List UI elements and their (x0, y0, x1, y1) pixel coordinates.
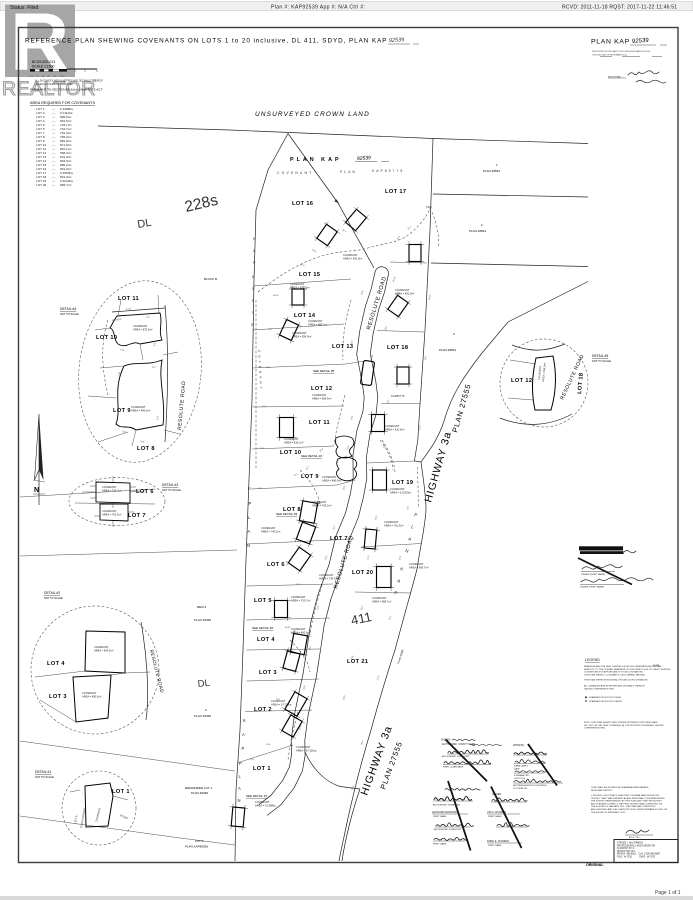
svg-text:KAP85775: KAP85775 (391, 394, 405, 398)
svg-text:COVENANT: COVENANT (372, 596, 387, 600)
svg-text:COVENANT: COVENANT (312, 393, 327, 397)
svg-text:PLAN: PLAN (340, 170, 357, 174)
svg-text:AREA = 761.3m²: AREA = 761.3m² (102, 512, 122, 516)
svg-text:AREA = 886.2m²: AREA = 886.2m² (308, 322, 328, 326)
svg-text:COVENANT: COVENANT (255, 800, 270, 804)
svg-text:STANDARD IRON POST FOUND: STANDARD IRON POST FOUND (589, 696, 622, 699)
svg-text:K: K (243, 718, 246, 723)
svg-text:92539: 92539 (357, 155, 371, 162)
svg-text:DETAIL #3: DETAIL #3 (162, 483, 178, 487)
svg-text:COVENANT: COVENANT (343, 253, 358, 257)
svg-text:THIS PLAN SHEWS HORIZONTAL GRO: THIS PLAN SHEWS HORIZONTAL GROUND LEVEL … (584, 679, 648, 682)
svg-text:COVENANT: COVENANT (322, 475, 337, 479)
svg-text:NOT SET ON THE TRUE CORNER(S).: NOT SET ON THE TRUE CORNER(S). AT THE PR… (584, 724, 664, 727)
svg-text:AREA = 895.7m²: AREA = 895.7m² (372, 599, 392, 603)
svg-text:FRED E. RUNZER: FRED E. RUNZER (487, 839, 509, 843)
svg-text:LOT 19: LOT 19 (392, 480, 413, 486)
svg-text:I, STEVEN J. McCORMICK, A BRIT: I, STEVEN J. McCORMICK, A BRITISH COLUMB… (591, 794, 660, 797)
svg-text:BCGS 82E.013: BCGS 82E.013 (32, 60, 55, 64)
svg-text:COVENANT: COVENANT (82, 691, 97, 695)
svg-text:PLAN 28834: PLAN 28834 (483, 169, 500, 173)
svg-text:PRINT NAME: PRINT NAME (488, 815, 502, 818)
svg-text:PENTICTON, B.C.: PENTICTON, B.C. (617, 851, 636, 853)
svg-text:THIS PLAN LIES WITHIN THE OKAN: THIS PLAN LIES WITHIN THE OKANAGAN SIMIL… (591, 786, 649, 789)
svg-text:NOTE: THIS PLAN SHEWS ONE OR M: NOTE: THIS PLAN SHEWS ONE OR MORE WITNES… (584, 721, 658, 724)
svg-text:AREA = 761.3m²: AREA = 761.3m² (384, 523, 404, 527)
svg-text:5: 5 (251, 323, 253, 327)
svg-text:LOT 4: LOT 4 (257, 637, 275, 643)
svg-text:NOT TO SCALE: NOT TO SCALE (592, 359, 611, 363)
svg-text:15 0 15 30 45: 15 0 15 30 45 60 75 m (29, 76, 65, 78)
svg-text:SEE DETAIL #2: SEE DETAIL #2 (252, 626, 274, 630)
svg-text:LOT 7: LOT 7 (330, 536, 348, 542)
svg-text:LOT 15: LOT 15 (299, 272, 320, 278)
svg-text:PLAN 28834: PLAN 28834 (469, 229, 486, 233)
svg-text:REMAINDER LOT 1: REMAINDER LOT 1 (185, 786, 212, 790)
svg-text:UNSURVEYED CROWN LAND: UNSURVEYED CROWN LAND (255, 111, 370, 118)
svg-text:LOT 1: LOT 1 (112, 789, 130, 795)
svg-text:LEONARD EDWARDS: LEONARD EDWARDS (432, 810, 459, 814)
svg-text:KAP85775: KAP85775 (372, 169, 404, 173)
svg-text:COVENANT: COVENANT (261, 526, 276, 530)
svg-text:AREA = 0.7111ha: AREA = 0.7111ha (271, 702, 292, 706)
svg-text:AREA = 842.6m²: AREA = 842.6m² (94, 648, 114, 652)
svg-text:REFERENCE PLAN SHEWING COVENAN: REFERENCE PLAN SHEWING COVENANTS ON LOTS… (25, 38, 387, 45)
svg-text:NOT TO SCALE: NOT TO SCALE (162, 488, 181, 492)
svg-text:P: P (242, 746, 245, 751)
svg-text:COVENANT: COVENANT (277, 171, 313, 175)
svg-text:LOT 5: LOT 5 (254, 598, 272, 604)
svg-text:LOT 6: LOT 6 (267, 562, 285, 568)
svg-text:LOT 20: LOT 20 (352, 570, 373, 576)
svg-text:DETAIL #1: DETAIL #1 (35, 770, 51, 774)
svg-text:AREA = 871.0m²: AREA = 871.0m² (133, 327, 153, 331)
svg-text:OCCUPATION: OCCUPATION (513, 787, 528, 790)
svg-text:Plan #: KAP92539 App #: N/A Ct: Plan #: KAP92539 App #: N/A Ctrl #: (271, 5, 365, 11)
svg-text:AND PLAN ARE CORRECT. THE FIEL: AND PLAN ARE CORRECT. THE FIELD SURVEY W… (591, 802, 663, 805)
svg-text:AND CHECKED, AND THE CHECKLIST: AND CHECKED, AND THE CHECKLIST FILED UND… (591, 808, 668, 811)
svg-text:LEGEND: LEGEND (585, 658, 600, 662)
svg-text:AREA = 568.3m²: AREA = 568.3m² (312, 396, 332, 400)
svg-text:SIGNED: SIGNED (492, 793, 501, 796)
svg-text:DETAIL #5: DETAIL #5 (592, 354, 608, 358)
svg-text:LOT 4: LOT 4 (47, 661, 65, 667)
svg-text:NOT TO SCALE: NOT TO SCALE (44, 596, 63, 600)
svg-text:THE 3rd DAY OF FEBRUARY, 2011.: THE 3rd DAY OF FEBRUARY, 2011. (591, 811, 626, 814)
svg-text:OTHERWISE NOTED.: OTHERWISE NOTED. (584, 728, 606, 730)
svg-text:AREA = 895.7m²: AREA = 895.7m² (409, 565, 429, 569)
svg-text:PLAN KAP: PLAN KAP (591, 39, 630, 46)
svg-text:THE SURVEY REPRESENTED BY THIS: THE SURVEY REPRESENTED BY THIS PLAN, AND… (591, 800, 663, 803)
svg-text:FILE: W-7235 DWG:: FILE: W-7235 DWG: W-7235 (617, 857, 656, 859)
svg-text:THIS PLAN SHEWS 1 COVENANT TO: THIS PLAN SHEWS 1 COVENANT TO ACCOMPANY … (584, 673, 646, 676)
svg-text:PRINT NAME: PRINT NAME (488, 844, 502, 847)
svg-text:KAP85775. TO THE OVERALL BEARI: KAP85775. TO THE OVERALL BEARINGS OF UTM… (584, 668, 671, 671)
svg-text:DEPOSITED IN THE LAND TITLE OF: DEPOSITED IN THE LAND TITLE OFFICE AT KA… (592, 50, 651, 53)
svg-text:FORWARD RD.: FORWARD RD. (514, 774, 530, 777)
svg-text:AREA = 890.5m²: AREA = 890.5m² (82, 694, 102, 698)
svg-text:AREA = 831.0m²: AREA = 831.0m² (290, 285, 310, 289)
svg-text:ALL DISTANCES ARE IN METRES AN: ALL DISTANCES ARE IN METRES AND DECIMALS… (584, 685, 646, 688)
svg-text:COVENANT: COVENANT (290, 282, 305, 286)
svg-text:NOT TO SCALE: NOT TO SCALE (35, 775, 54, 779)
svg-text:AREA = 840.0m²: AREA = 840.0m² (131, 408, 151, 412)
svg-text:AREA = 0.2232ha: AREA = 0.2232ha (390, 490, 411, 494)
svg-text:LOT 16: LOT 16 (292, 201, 313, 207)
svg-text:LOT 1: LOT 1 (253, 766, 271, 772)
svg-text:DL: DL (136, 217, 152, 231)
svg-text:AREA = 831.0m²: AREA = 831.0m² (395, 291, 415, 295)
svg-text:THIS 24th DAY OF NOVEMBER: THIS 24th DAY OF NOVEMBER 2011 (592, 54, 628, 57)
svg-text:SEE DETAIL #3: SEE DETAIL #3 (276, 512, 298, 516)
svg-text:AREA = 734.7m²: AREA = 734.7m² (319, 576, 339, 580)
svg-text:UNLESS OTHERWISE NOTED: UNLESS OTHERWISE NOTED (584, 688, 615, 690)
svg-text:BEARINGS ARE UTM GRID, DERIVED: BEARINGS ARE UTM GRID, DERIVED FROM GPS … (584, 665, 661, 668)
svg-text:COVENANT: COVENANT (133, 324, 148, 328)
svg-text:COVENANT: COVENANT (384, 520, 399, 524)
svg-text:COVENANT: COVENANT (409, 562, 424, 566)
svg-text:LOT 7: LOT 7 (128, 513, 146, 519)
svg-text:A: A (248, 529, 251, 534)
svg-text:DL: DL (197, 678, 210, 690)
svg-text:SEE DETAIL #1: SEE DETAIL #1 (246, 794, 268, 798)
svg-text:REGIONAL DISTRICT: REGIONAL DISTRICT (591, 789, 613, 792)
svg-text:COVENANT: COVENANT (131, 405, 146, 409)
svg-text:OWNER (PRINT NAME): OWNER (PRINT NAME) (580, 586, 604, 589)
svg-text:PLAN 36396: PLAN 36396 (194, 618, 211, 622)
svg-text:COVENANT: COVENANT (291, 627, 306, 631)
svg-text:7: 7 (252, 299, 254, 303)
svg-text:LOT 3: LOT 3 (49, 694, 67, 700)
svg-text:SARA CAREY: SARA CAREY (514, 764, 529, 767)
svg-text:COVENANT: COVENANT (312, 500, 327, 504)
svg-text:COVENANT: COVENANT (284, 437, 299, 441)
svg-text:R=15: R=15 (285, 627, 291, 629)
svg-text:REGISTRAR: REGISTRAR (608, 76, 621, 79)
svg-text:LOT 17: LOT 17 (385, 189, 406, 195)
svg-text:TIES: TIES (426, 205, 432, 209)
svg-text:OSOYOOS: OSOYOOS (514, 778, 526, 780)
svg-text:LOT A: LOT A (195, 839, 203, 843)
svg-text:34 FRONT ST. S.: 34 FRONT ST. S. (617, 848, 635, 850)
svg-text:LOT 9: LOT 9 (301, 474, 319, 480)
svg-text:PH/FAX: 492-8811 Cell: 1-25: PH/FAX: 492-8811 Cell: 1-250-490-5887 (617, 853, 661, 856)
svg-text:COVENANT: COVENANT (308, 319, 323, 323)
svg-text:A: A (238, 786, 241, 791)
svg-text:AREA = 840.0m²: AREA = 840.0m² (322, 478, 342, 482)
svg-text:PURSUANT TO SECTION 99(1)(e: PURSUANT TO SECTION 99(1)(e), LAND TITLE… (30, 88, 102, 92)
svg-text:PLAN 28834: PLAN 28834 (439, 348, 456, 352)
svg-text:LOT 11: LOT 11 (309, 420, 330, 426)
svg-text:P: P (249, 501, 252, 506)
svg-text:COVENANT: COVENANT (395, 288, 410, 292)
svg-text:AREA = 810.1m²: AREA = 810.1m² (284, 440, 304, 444)
svg-text:PRINT NAME: PRINT NAME (433, 842, 447, 845)
svg-text:UNLESS OTHERWISE INDICATED: UNLESS OTHERWISE INDICATED (35, 83, 73, 86)
svg-text:PRINT NAME: PRINT NAME (433, 815, 447, 818)
svg-text:LOT 9: LOT 9 (113, 408, 131, 414)
svg-text:AUTHORIZED SIGNATORY: AUTHORIZED SIGNATORY (442, 755, 470, 758)
svg-text:DATE: DATE (514, 767, 520, 770)
svg-text:COVENANT: COVENANT (385, 424, 400, 428)
svg-text:ORIGINAL: ORIGINAL (586, 863, 604, 867)
svg-text:N: N (247, 543, 250, 548)
svg-text:COVENANT: COVENANT (319, 573, 334, 577)
svg-text:RCVD: 2011-11-18 RQST: 2017-11: RCVD: 2011-11-18 RQST: 2017-11-22 11:46:… (562, 5, 677, 11)
svg-text:A: A (242, 732, 245, 737)
svg-text:AREA = 740.2m²: AREA = 740.2m² (261, 529, 281, 533)
svg-text:P: P (239, 761, 242, 766)
svg-text:COVENANT: COVENANT (291, 595, 306, 599)
svg-text:FREE CLEAR BANK: FREE CLEAR BANK (443, 765, 464, 768)
svg-text:DETAIL #4: DETAIL #4 (60, 307, 76, 311)
svg-text:AREA = 842.6m²: AREA = 842.6m² (291, 630, 311, 634)
svg-text:AREA = 734.7m²: AREA = 734.7m² (102, 488, 122, 492)
svg-text:BCLS #790: BCLS #790 (629, 837, 640, 839)
svg-text:SEE DETAIL #4: SEE DETAIL #4 (301, 454, 323, 458)
svg-text:BLOCK B: BLOCK B (204, 277, 217, 281)
svg-text:COVENANT: COVENANT (102, 509, 117, 513)
svg-text:COVENANT: COVENANT (94, 645, 109, 649)
svg-text:LOT 2: LOT 2 (254, 707, 272, 713)
svg-text:PLAN KAP: PLAN KAP (290, 157, 342, 163)
svg-text:92539: 92539 (389, 37, 405, 44)
svg-text:7: 7 (252, 311, 254, 315)
svg-text:N: N (34, 487, 39, 494)
svg-text:5: 5 (252, 287, 254, 291)
svg-text:AREA = 765.2m²: AREA = 765.2m² (312, 503, 332, 507)
svg-text:NOT TO SCALE: NOT TO SCALE (60, 312, 79, 316)
svg-text:AREA = 0.1398ha: AREA = 0.1398ha (255, 803, 276, 807)
svg-text:OWNER (PRINT NAME): OWNER (PRINT NAME) (581, 573, 605, 576)
svg-text:PLAN 36396: PLAN 36396 (191, 791, 208, 795)
svg-text:AREA = 831.0m²: AREA = 831.0m² (343, 256, 363, 260)
svg-text:PLAN KAP86936: PLAN KAP86936 (185, 845, 208, 849)
svg-text:COVENANT: COVENANT (390, 487, 405, 491)
svg-text:LOT 6: LOT 6 (136, 489, 154, 495)
svg-text:THE 15th DAY OF JANUARY, 2011.: THE 15th DAY OF JANUARY, 2011. THE PLAN … (591, 805, 656, 808)
svg-text:CERTIFY THAT I WAS PRESENT AT: CERTIFY THAT I WAS PRESENT AT AND PERSON… (591, 797, 665, 800)
svg-text:N: N (238, 798, 241, 803)
svg-text:AREA = 834.3m²: AREA = 834.3m² (292, 334, 312, 338)
svg-text:AUTHORIZED SIGNATORY: AUTHORIZED SIGNATORY (434, 828, 462, 831)
svg-text:LOT 12: LOT 12 (511, 378, 532, 384)
svg-text:COVENANT: COVENANT (292, 331, 307, 335)
svg-text:WITNESS: WITNESS (513, 744, 524, 747)
svg-text:LOT 20: LOT 20 (36, 183, 47, 187)
svg-text:AREA = 0.7111ha: AREA = 0.7111ha (296, 748, 317, 752)
svg-text:STEVEN J. McCORMICK: STEVEN J. McCORMICK (617, 843, 644, 845)
svg-text:LOT 12: LOT 12 (311, 386, 332, 392)
svg-text:LOT 8: LOT 8 (137, 446, 155, 452)
svg-text:KAP___: KAP___ (653, 664, 664, 668)
svg-text:8: 8 (252, 275, 254, 279)
svg-text:REM 2: REM 2 (197, 605, 207, 609)
svg-text:K: K (248, 486, 251, 491)
svg-text:Status: Filed: Status: Filed (10, 5, 38, 11)
svg-text:R=15: R=15 (273, 295, 279, 297)
svg-text:SEE DETAIL #5: SEE DETAIL #5 (313, 369, 335, 373)
svg-text:LOT 14: LOT 14 (294, 313, 316, 319)
svg-text:AREA = 703.7m²: AREA = 703.7m² (291, 598, 311, 602)
svg-text:CONVERGENCE IS APPLIED AND IS: CONVERGENCE IS APPLIED AND IS TO BE CONT… (584, 671, 644, 674)
svg-text:Page 1 of 1: Page 1 of 1 (655, 890, 681, 896)
svg-text:92539: 92539 (632, 38, 650, 45)
svg-text:LOT 10: LOT 10 (280, 450, 301, 456)
svg-text:STANDARD IRON POST PLACED: STANDARD IRON POST PLACED (589, 700, 623, 703)
svg-text:SCALE 1:1500: SCALE 1:1500 (32, 65, 55, 69)
svg-text:LOT 3: LOT 3 (259, 670, 277, 676)
svg-text:DETAIL #2: DETAIL #2 (44, 591, 60, 595)
svg-text:AREA = 631.0m²: AREA = 631.0m² (385, 427, 405, 431)
svg-text:BETWEEN AGENT/CO-WORKER: BETWEEN AGENT/CO-WORKER (513, 784, 547, 787)
svg-text:895.7m²: 895.7m² (60, 183, 71, 187)
svg-text:COVENANT: COVENANT (296, 745, 311, 749)
svg-text:AREA REQUIRED FOR COVENANTS: AREA REQUIRED FOR COVENANTS (30, 101, 95, 105)
svg-text:LOT 11: LOT 11 (118, 296, 139, 302)
svg-text:COVENANT: COVENANT (102, 485, 117, 489)
svg-text:PLAN 36396: PLAN 36396 (194, 714, 211, 718)
svg-text:PROFESSIONAL LAND SURVEYOR: PROFESSIONAL LAND SURVEYOR (617, 844, 655, 847)
